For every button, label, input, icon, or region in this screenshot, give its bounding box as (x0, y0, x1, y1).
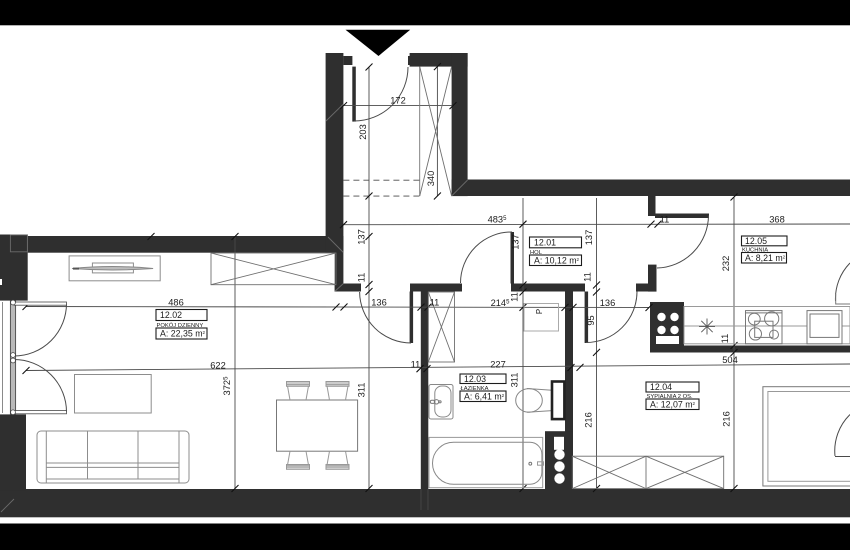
svg-text:11: 11 (660, 214, 670, 224)
svg-text:622: 622 (210, 361, 226, 371)
svg-text:A: 8,21 m2: A: 8,21 m2 (745, 253, 786, 263)
svg-text:12.03: 12.03 (464, 374, 486, 384)
svg-text:136: 136 (371, 297, 387, 307)
svg-text:12.01: 12.01 (534, 238, 556, 248)
svg-text:504: 504 (722, 355, 738, 365)
svg-text:368: 368 (769, 215, 785, 225)
svg-text:12.04: 12.04 (650, 382, 672, 392)
svg-text:216: 216 (722, 411, 732, 427)
svg-text:A: 12,07 m2: A: 12,07 m2 (650, 399, 696, 409)
svg-text:P: P (535, 309, 544, 314)
svg-text:172: 172 (390, 96, 406, 106)
svg-text:12.05: 12.05 (745, 236, 767, 246)
svg-text:232: 232 (721, 256, 731, 272)
svg-text:203: 203 (358, 124, 368, 140)
svg-text:12.02: 12.02 (160, 310, 182, 320)
svg-text:340: 340 (426, 171, 436, 187)
svg-text:11: 11 (510, 292, 520, 302)
svg-text:486: 486 (168, 297, 184, 307)
svg-text:311: 311 (510, 373, 520, 388)
svg-text:A: 22,35 m2: A: 22,35 m2 (160, 329, 206, 339)
svg-text:216: 216 (584, 412, 594, 428)
svg-text:136: 136 (600, 298, 616, 308)
svg-text:11: 11 (583, 272, 593, 282)
svg-text:137: 137 (584, 230, 594, 246)
svg-text:311: 311 (357, 383, 367, 398)
svg-text:11: 11 (720, 334, 730, 344)
svg-text:11: 11 (411, 360, 421, 370)
svg-text:11: 11 (357, 273, 367, 283)
svg-text:11: 11 (430, 297, 440, 307)
svg-text:A: 10,12 m2: A: 10,12 m2 (534, 255, 580, 265)
svg-text:95: 95 (586, 315, 596, 325)
svg-text:A: 6,41 m2: A: 6,41 m2 (464, 391, 505, 401)
svg-text:227: 227 (490, 359, 506, 369)
svg-text:137: 137 (511, 234, 521, 250)
svg-text:137: 137 (357, 229, 367, 245)
